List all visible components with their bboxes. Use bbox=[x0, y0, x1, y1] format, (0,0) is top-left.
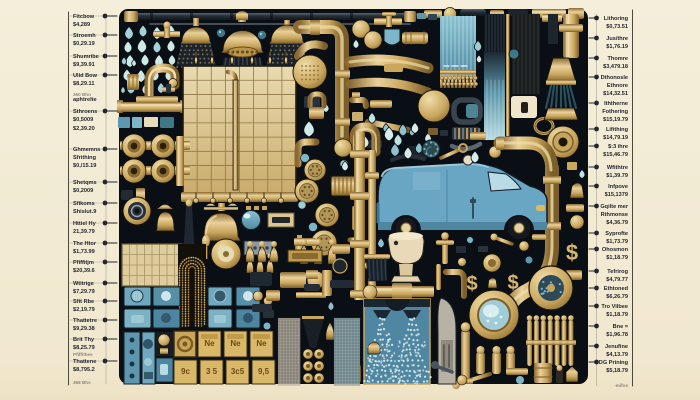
svg-text:Sthroens: Sthroens bbox=[73, 109, 97, 115]
svg-text:Pfiffitjm: Pfiffitjm bbox=[73, 260, 94, 266]
svg-text:$0,2009: $0,2009 bbox=[73, 188, 93, 194]
svg-text:Dthonosle: Dthonosle bbox=[601, 75, 628, 81]
svg-text:Pfiffithes: Pfiffithes bbox=[73, 352, 93, 357]
svg-text:$1,76.19: $1,76.19 bbox=[606, 44, 628, 50]
svg-text:Ohosmon: Ohosmon bbox=[602, 247, 629, 253]
svg-text:Jenufine: Jenufine bbox=[605, 344, 628, 350]
svg-text:$7,29.79: $7,29.79 bbox=[73, 289, 95, 295]
svg-text:Bne =: Bne = bbox=[613, 324, 629, 330]
svg-text:$2,39.20: $2,39.20 bbox=[73, 126, 95, 132]
svg-text:$8,25.79: $8,25.79 bbox=[73, 345, 95, 351]
svg-text:$5,18.79: $5,18.79 bbox=[606, 368, 628, 374]
svg-text:$4,289: $4,289 bbox=[73, 22, 90, 28]
svg-text:$1,96.78: $1,96.78 bbox=[606, 332, 628, 338]
svg-text:Lithoring: Lithoring bbox=[604, 16, 629, 22]
svg-text:$4,36.79: $4,36.79 bbox=[606, 220, 628, 226]
svg-text:Wfithtre: Wfithtre bbox=[607, 165, 628, 171]
svg-text:$1,39.79: $1,39.79 bbox=[606, 173, 628, 179]
svg-text:21,39.79: 21,39.79 bbox=[73, 229, 95, 235]
svg-text:$8,795.2: $8,795.2 bbox=[73, 367, 95, 373]
svg-text:Brit Thy: Brit Thy bbox=[73, 337, 95, 343]
svg-text:Sfikoms: Sfikoms bbox=[73, 201, 95, 207]
svg-text:$0,/15.19: $0,/15.19 bbox=[73, 163, 96, 169]
svg-text:$8,29.11: $8,29.11 bbox=[73, 81, 94, 87]
svg-text:$: $ bbox=[466, 273, 477, 295]
svg-text:$14,79.19: $14,79.19 bbox=[603, 135, 628, 141]
svg-text:Thomre: Thomre bbox=[607, 56, 628, 62]
svg-text:Stroemh: Stroemh bbox=[73, 33, 96, 39]
svg-text:Ne: Ne bbox=[230, 339, 241, 348]
svg-text:3 5: 3 5 bbox=[206, 367, 218, 376]
svg-text:Gqilte mer: Gqilte mer bbox=[600, 204, 628, 210]
svg-text:$4,79.77: $4,79.77 bbox=[606, 277, 628, 283]
svg-text:Ghmemns: Ghmemns bbox=[73, 147, 100, 153]
svg-text:9,5: 9,5 bbox=[258, 367, 270, 376]
svg-text:DG Prining: DG Prining bbox=[599, 360, 629, 366]
svg-text:Fitcbow: Fitcbow bbox=[73, 14, 95, 20]
svg-text:$1,73.99: $1,73.99 bbox=[73, 249, 95, 255]
svg-text:Iththerne: Iththerne bbox=[604, 101, 628, 107]
svg-text:aphtrelte: aphtrelte bbox=[73, 97, 97, 103]
svg-text:$0,5009: $0,5009 bbox=[73, 117, 93, 123]
svg-text:$9,39.91: $9,39.91 bbox=[73, 62, 95, 68]
svg-text:Shislut.9: Shislut.9 bbox=[73, 209, 96, 215]
svg-text:Sfrithing: Sfrithing bbox=[73, 155, 97, 161]
svg-text:Sfit Rbe: Sfit Rbe bbox=[73, 299, 94, 305]
svg-text:Httiel Hy: Httiel Hy bbox=[73, 221, 97, 227]
svg-text:Syprofte: Syprofte bbox=[605, 231, 628, 237]
svg-text:Shetqms: Shetqms bbox=[73, 180, 97, 186]
svg-text:Tefrirog: Tefrirog bbox=[607, 269, 628, 275]
svg-text:The Htor: The Htor bbox=[73, 241, 97, 247]
svg-text:Ne: Ne bbox=[256, 339, 267, 348]
svg-text:Ulid Bow: Ulid Bow bbox=[73, 73, 98, 79]
svg-text:$15,46.79: $15,46.79 bbox=[603, 152, 628, 158]
svg-text:-mifos: -mifos bbox=[614, 383, 628, 388]
svg-text:Thattene: Thattene bbox=[73, 359, 96, 365]
svg-text:$15,19.79: $15,19.79 bbox=[603, 117, 628, 123]
svg-text:$:3 ihre: $:3 ihre bbox=[608, 144, 628, 150]
svg-text:9c: 9c bbox=[181, 367, 190, 376]
svg-text:Fothering: Fothering bbox=[602, 109, 628, 115]
svg-text:Wtitrige: Wtitrige bbox=[73, 281, 94, 287]
svg-text:368 Bhs: 368 Bhs bbox=[73, 380, 91, 385]
svg-text:Ethtoned: Ethtoned bbox=[604, 286, 629, 292]
svg-text:Ne: Ne bbox=[204, 339, 215, 348]
svg-text:Lifithing: Lifithing bbox=[606, 127, 629, 133]
svg-text:Thattetre: Thattetre bbox=[73, 318, 97, 324]
svg-text:Ethnore: Ethnore bbox=[607, 83, 628, 89]
svg-text:Jus/thre: Jus/thre bbox=[606, 36, 628, 42]
svg-text:Shumribe: Shumribe bbox=[73, 54, 99, 60]
svg-text:Rthmonse: Rthmonse bbox=[601, 212, 628, 218]
svg-text:$9,29.38: $9,29.38 bbox=[73, 326, 95, 332]
svg-text:$2,19.79: $2,19.79 bbox=[73, 307, 95, 313]
svg-text:3c5: 3c5 bbox=[231, 367, 245, 376]
svg-text:$0,73.51: $0,73.51 bbox=[606, 24, 628, 30]
svg-text:$: $ bbox=[507, 272, 518, 294]
svg-text:$1,18.79: $1,18.79 bbox=[606, 255, 628, 261]
svg-text:$14,32.51: $14,32.51 bbox=[603, 91, 628, 97]
svg-text:$4,13.79: $4,13.79 bbox=[606, 352, 628, 358]
svg-text:$0,29.19: $0,29.19 bbox=[73, 41, 95, 47]
svg-text:$3,479.18: $3,479.18 bbox=[603, 64, 628, 70]
svg-text:$1,18.79: $1,18.79 bbox=[606, 312, 628, 318]
svg-text:Infpove: Infpove bbox=[608, 184, 628, 190]
svg-text:$6,26.79: $6,26.79 bbox=[606, 294, 628, 300]
svg-text:$1,73.79: $1,73.79 bbox=[606, 239, 628, 245]
svg-text:$15,1379: $15,1379 bbox=[605, 192, 628, 198]
svg-text:Tro Vilbee: Tro Vilbee bbox=[601, 304, 628, 310]
svg-text:$: $ bbox=[566, 240, 578, 265]
svg-text:$20,39.6: $20,39.6 bbox=[73, 268, 95, 274]
